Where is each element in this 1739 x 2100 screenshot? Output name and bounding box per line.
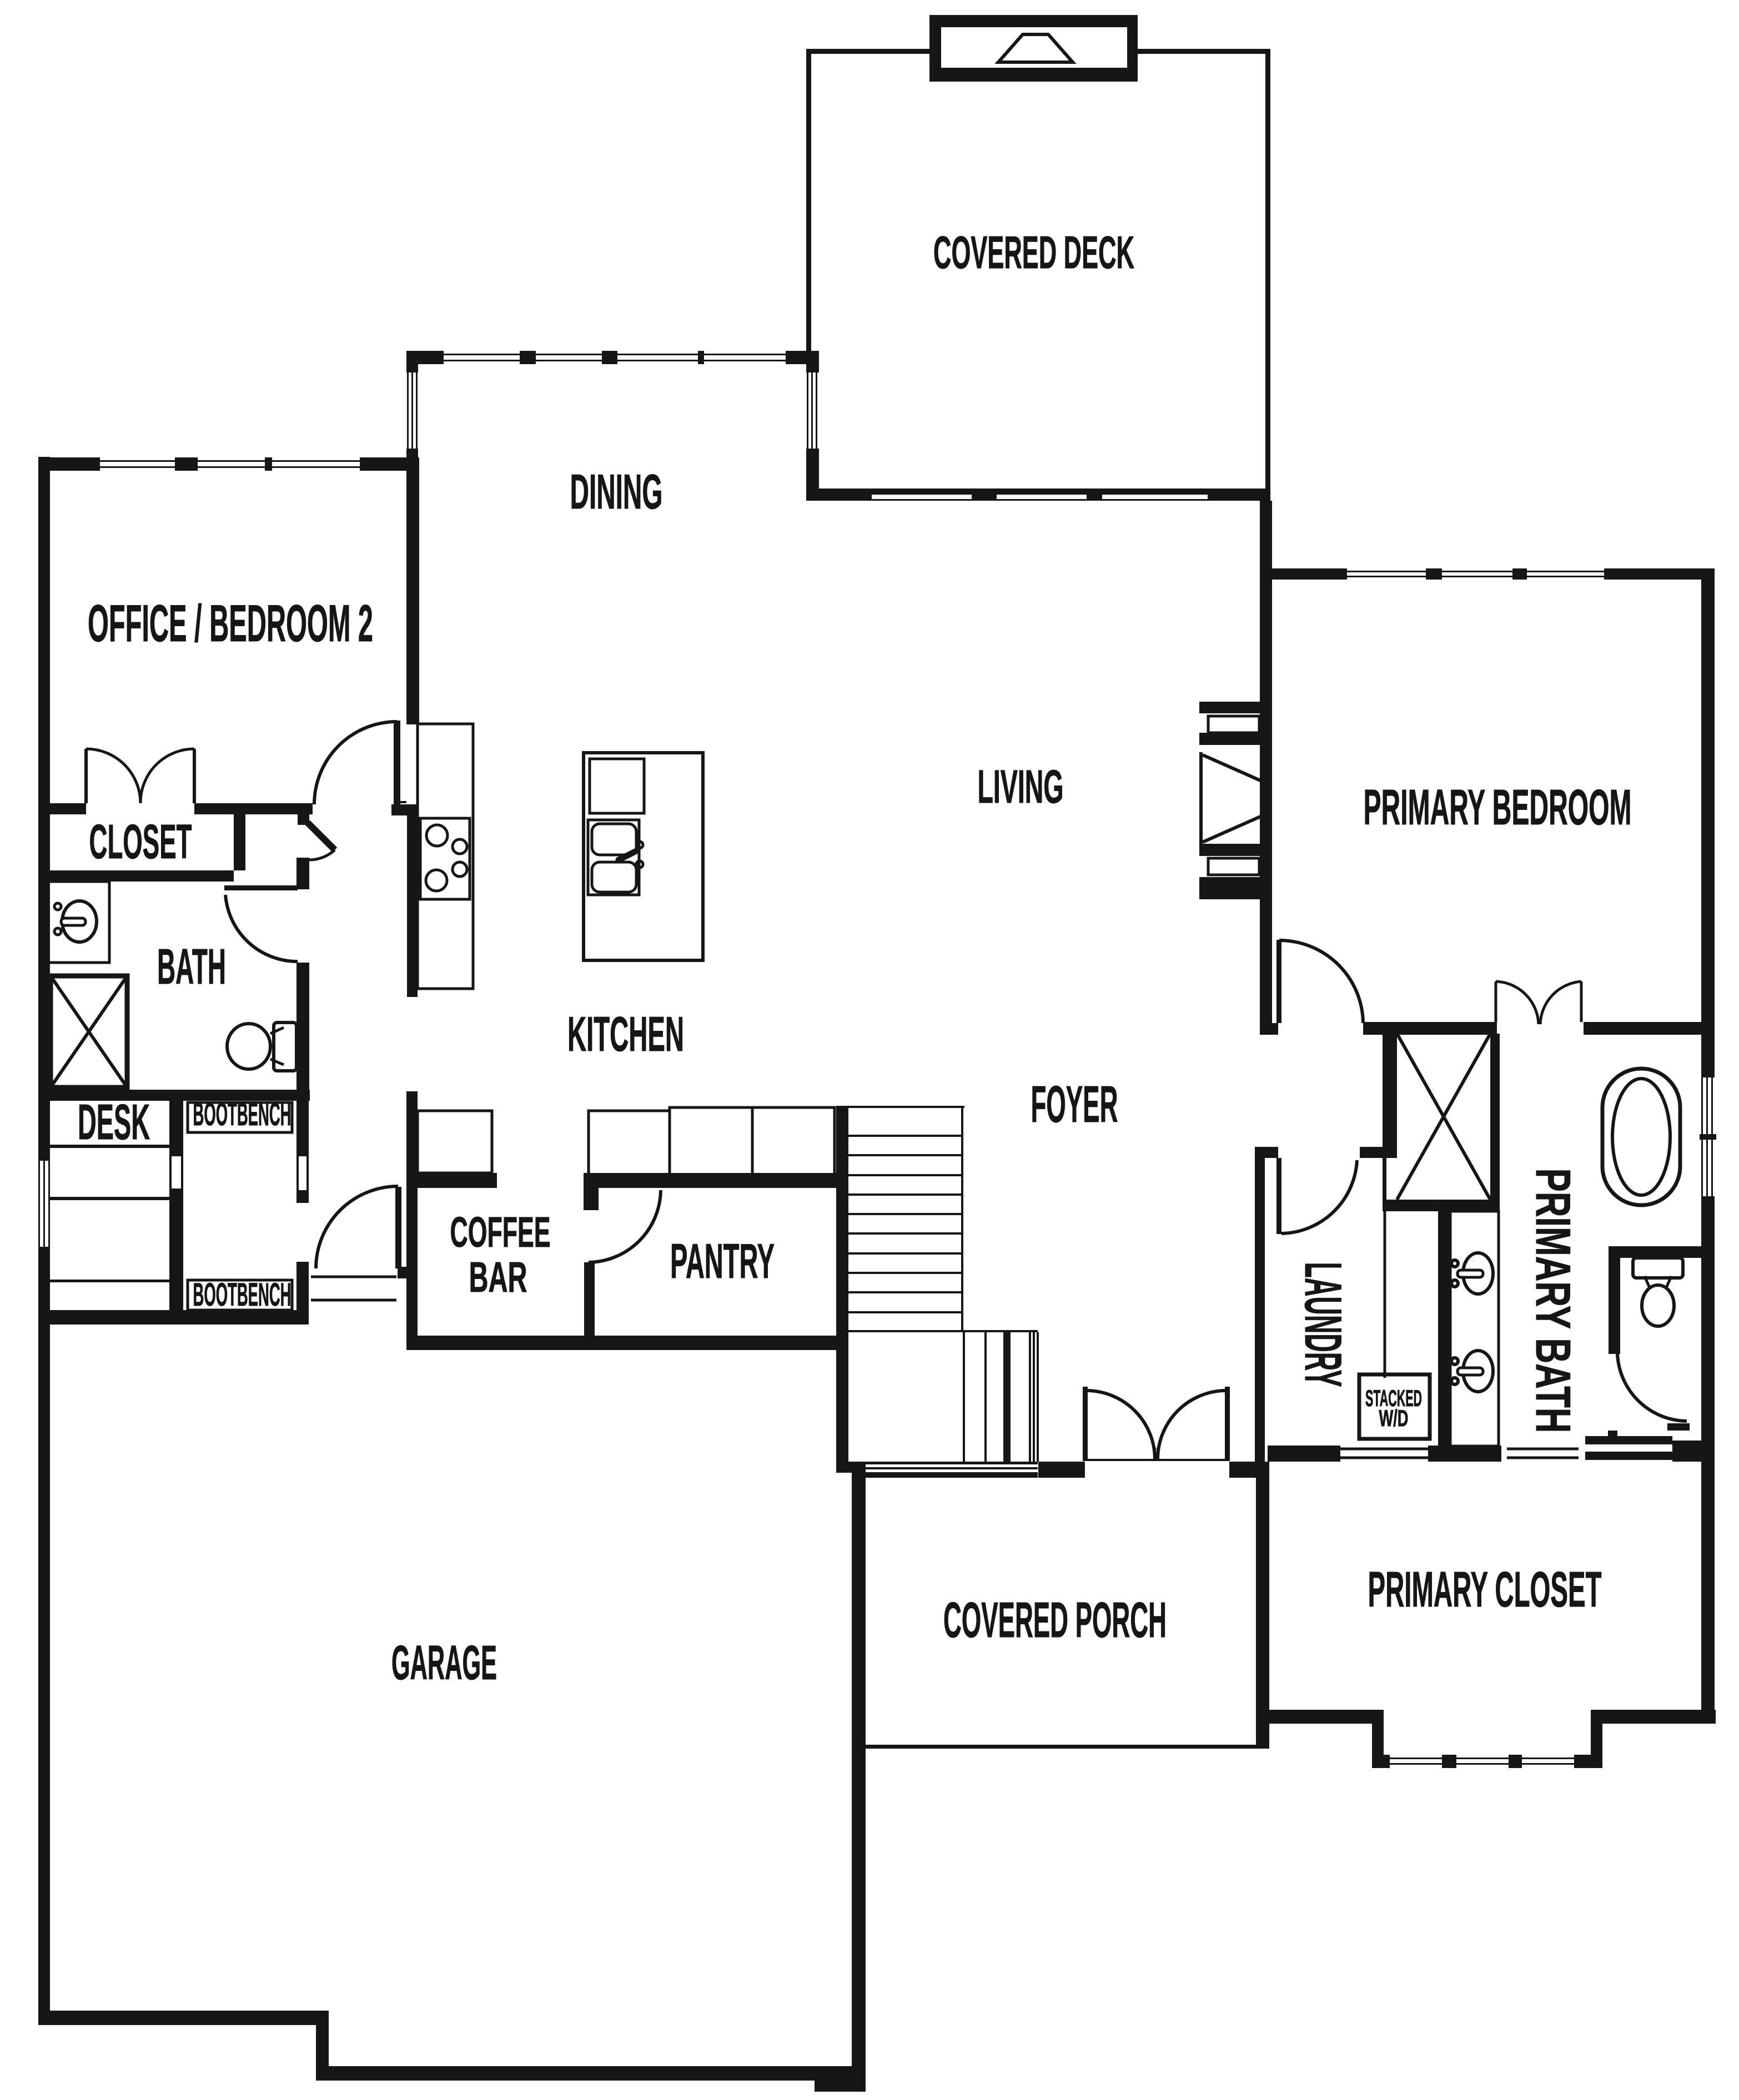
svg-text:PRIMARY BEDROOM: PRIMARY BEDROOM [1364,780,1632,835]
svg-text:KITCHEN: KITCHEN [567,1006,684,1061]
svg-text:GARAGE: GARAGE [391,1636,497,1690]
svg-text:PANTRY: PANTRY [670,1233,775,1288]
svg-text:W/D: W/D [1379,1405,1409,1431]
svg-text:PRIMARY BATH: PRIMARY BATH [1526,1169,1581,1433]
svg-text:LIVING: LIVING [978,761,1064,813]
svg-text:COFFEE: COFFEE [450,1208,551,1256]
svg-text:CLOSET: CLOSET [89,815,192,869]
svg-text:BOOTBENCH: BOOTBENCH [193,1096,291,1132]
svg-text:BAR: BAR [469,1253,527,1301]
svg-text:PRIMARY CLOSET: PRIMARY CLOSET [1368,1562,1602,1618]
svg-text:DINING: DINING [570,464,663,519]
svg-text:DESK: DESK [78,1095,150,1150]
svg-text:COVERED PORCH: COVERED PORCH [943,1593,1167,1648]
svg-text:BATH: BATH [157,939,226,995]
svg-text:FOYER: FOYER [1031,1075,1118,1133]
svg-text:OFFICE / BEDROOM 2: OFFICE / BEDROOM 2 [88,594,373,652]
svg-text:LAUNDRY: LAUNDRY [1294,1262,1353,1387]
svg-text:COVERED DECK: COVERED DECK [933,226,1134,278]
svg-text:BOOTBENCH: BOOTBENCH [193,1277,291,1313]
